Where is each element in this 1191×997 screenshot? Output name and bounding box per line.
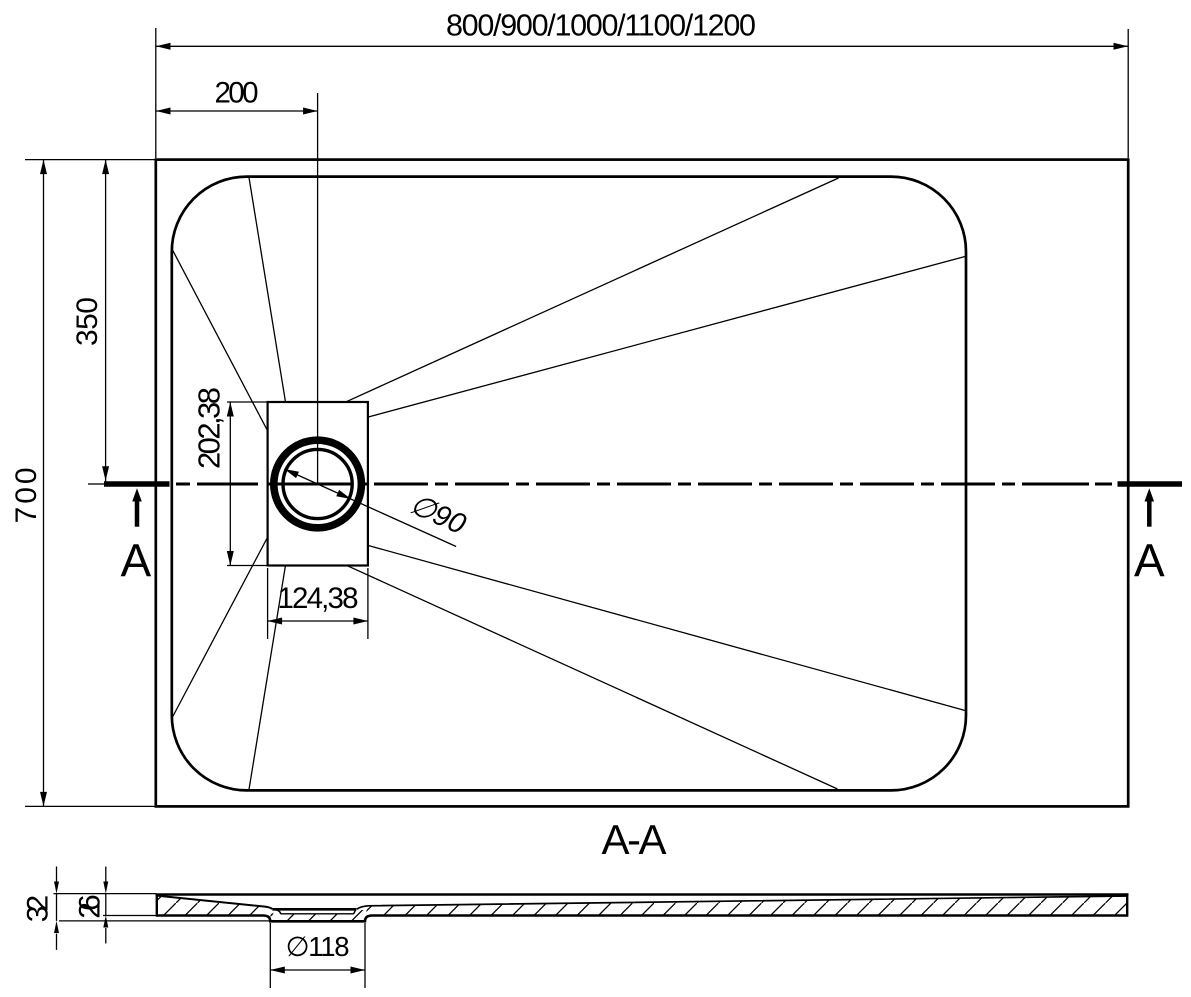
svg-text:200: 200 bbox=[215, 77, 259, 110]
svg-text:A: A bbox=[1134, 535, 1165, 587]
svg-text:800/900/1000/1100/1200: 800/900/1000/1100/1200 bbox=[446, 9, 756, 43]
svg-text:∅118: ∅118 bbox=[286, 931, 350, 962]
svg-text:124,38: 124,38 bbox=[278, 582, 359, 615]
svg-text:A: A bbox=[120, 535, 151, 587]
svg-text:700: 700 bbox=[10, 467, 43, 523]
svg-text:32: 32 bbox=[21, 895, 54, 923]
svg-text:350: 350 bbox=[71, 297, 104, 346]
svg-text:26: 26 bbox=[74, 894, 107, 919]
svg-text:A-A: A-A bbox=[602, 816, 667, 863]
svg-text:202,38: 202,38 bbox=[192, 387, 227, 469]
